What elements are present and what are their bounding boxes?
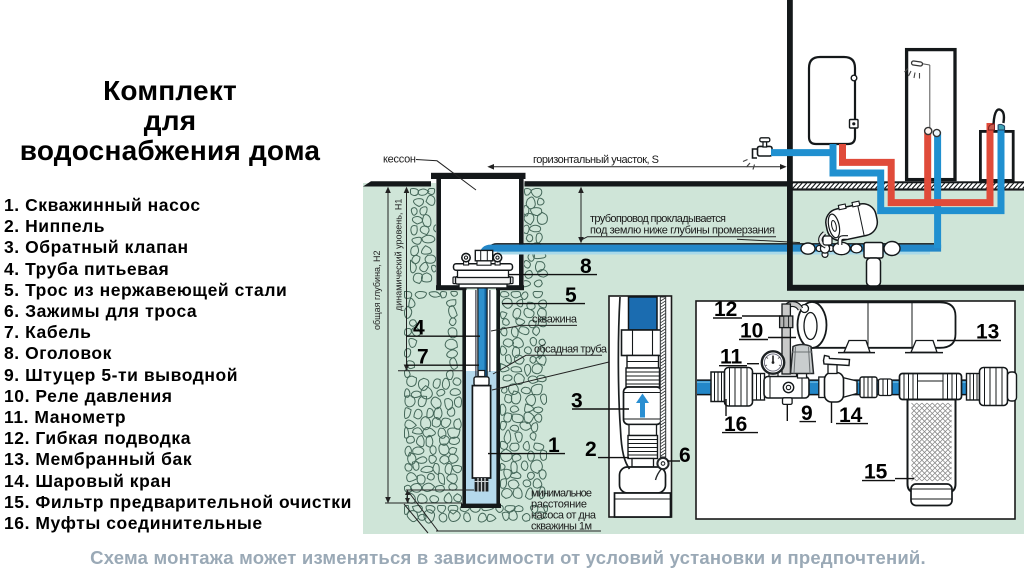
svg-text:динамический уровень, Н1: динамический уровень, Н1 [394, 199, 404, 311]
svg-text:трубопровод прокладывается: трубопровод прокладывается [590, 213, 726, 225]
svg-text:5: 5 [565, 284, 577, 307]
svg-text:3: 3 [571, 390, 583, 413]
svg-text:под землю ниже глубины промерз: под землю ниже глубины промерзания [590, 225, 775, 237]
svg-text:обсадная труба: обсадная труба [534, 344, 608, 356]
svg-text:2: 2 [585, 438, 597, 461]
svg-text:скважина: скважина [532, 314, 578, 326]
svg-text:11: 11 [720, 346, 743, 369]
svg-text:13: 13 [976, 321, 999, 344]
svg-text:14: 14 [839, 404, 863, 427]
svg-text:1: 1 [548, 434, 560, 457]
svg-text:12: 12 [714, 298, 737, 321]
svg-text:15: 15 [864, 461, 888, 484]
svg-text:10: 10 [740, 320, 763, 343]
svg-text:кессон: кессон [383, 154, 416, 166]
svg-text:общая глубина, Н2: общая глубина, Н2 [372, 250, 382, 330]
svg-text:7: 7 [417, 346, 429, 369]
svg-text:4: 4 [413, 317, 425, 340]
svg-text:8: 8 [580, 255, 592, 278]
svg-text:9: 9 [801, 402, 813, 425]
svg-text:6: 6 [679, 444, 691, 467]
svg-text:скважины 1м: скважины 1м [531, 521, 592, 533]
svg-text:горизонтальный участок, S: горизонтальный участок, S [533, 154, 659, 166]
svg-text:16: 16 [724, 413, 747, 436]
